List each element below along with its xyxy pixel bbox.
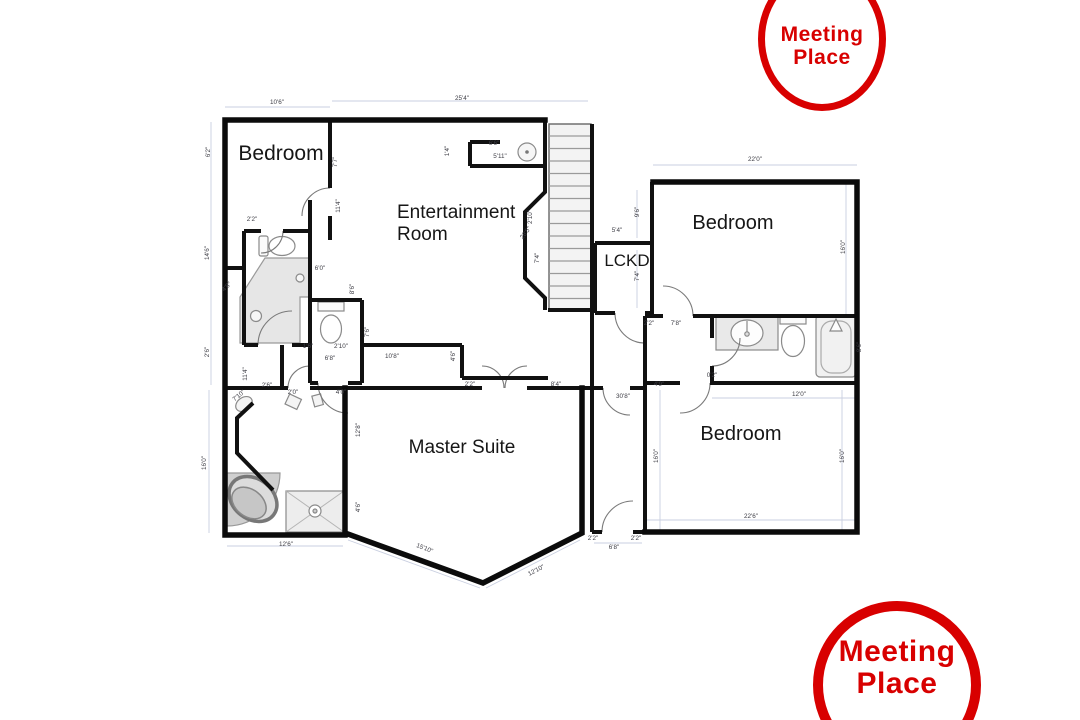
dimension-label: 0'2" [707,372,717,379]
dimension-label: 12'0" [792,391,806,398]
dimension-label: 25'4" [455,95,469,102]
dimension-label: 2'0" [288,389,298,396]
dimension-label: 2'10" [334,343,348,350]
ceiling-fixture-icon [518,143,536,161]
dimension-label: 22'6" [744,513,758,520]
shower-icon [286,491,344,532]
dimension-label: 12'6" [279,541,293,548]
bathroom-vanity-icon [716,317,778,350]
dimension-label: 2'10" [527,210,534,224]
logo-text-line2: Place [857,668,938,700]
dimension-label: 4'6" [355,502,362,512]
dimension-label: 8'6" [856,342,863,352]
dimension-label: 11'4" [242,367,249,380]
toilet-icon [780,316,806,357]
dimension-label: 11'4" [335,199,342,212]
dimension-label: 4'0" [336,389,346,396]
dimension-label: 2'2" [631,535,641,542]
dimension-label: 8'6" [349,284,356,294]
dimension-label: 6'0" [315,265,325,272]
logo-text-line1: Meeting [781,24,864,47]
dimension-label: 7'4" [634,271,641,281]
dimension-label: 7'7" [332,157,339,167]
dimension-label: 30'8" [616,393,630,400]
room-label: Bedroom [692,212,773,234]
dimension-label: 8'4" [551,381,561,388]
dimension-label: 6'6" [489,140,499,147]
dimension-label: 4'9" [654,381,664,388]
room-label: LCKD [604,251,649,270]
dimension-label: 1'6" [303,343,313,350]
vanity-sink-icon [240,258,310,343]
dimension-label: 15'10" [415,542,434,555]
dimension-label: 2'2" [465,381,475,388]
dimension-label: 10'8" [385,353,399,360]
toilet-icon [318,302,344,343]
dimension-label: 28'5" [519,225,533,240]
room-label: Bedroom [700,423,781,445]
dimension-label: 16'0" [840,240,847,254]
dimension-label: 16'0" [839,449,846,463]
dimension-label: 12'8" [355,423,362,437]
dimension-label: 2'2" [247,216,257,223]
room-label: Master Suite [409,437,516,458]
dimension-label: 14'6" [204,246,211,260]
dimension-label: 7'6" [364,327,371,337]
dimension-label: 5'4" [612,227,622,234]
dimension-label: 10'6" [270,99,284,106]
corner-tub-icon [220,467,286,531]
room-label: Entertainment [397,202,516,223]
dimension-label: 6'8" [325,355,335,362]
bathtub-icon [816,315,856,377]
dimension-label: 5'11" [493,153,506,160]
dimension-label: 16'0" [201,456,208,470]
dimension-label: 7'4" [534,253,541,263]
dimension-label: 6'2" [205,147,212,157]
room-label: Bedroom [238,142,323,165]
floor-plan-page: BedroomEntertainmentRoomBedroomLCKDMaste… [0,0,1080,720]
logo-text-line2: Place [793,47,850,70]
dimension-label: 22'0" [748,156,762,163]
dimension-label: 2'2" [588,535,598,542]
dimension-label: 2'6" [262,382,272,389]
dimension-label: 16'0" [653,449,660,463]
dimension-label: 6'8" [609,544,619,551]
room-label: Room [397,224,448,245]
dimension-label: 1'4" [444,146,451,156]
dimension-label: 2'2" [644,320,654,327]
dimension-label: 9'6" [634,207,641,217]
staircase [549,124,591,310]
dimension-label: 4'6" [450,351,457,361]
dimension-label: 2'6" [204,347,211,357]
dimension-label: 7'8" [671,320,681,327]
logo-text-line1: Meeting [839,636,956,668]
